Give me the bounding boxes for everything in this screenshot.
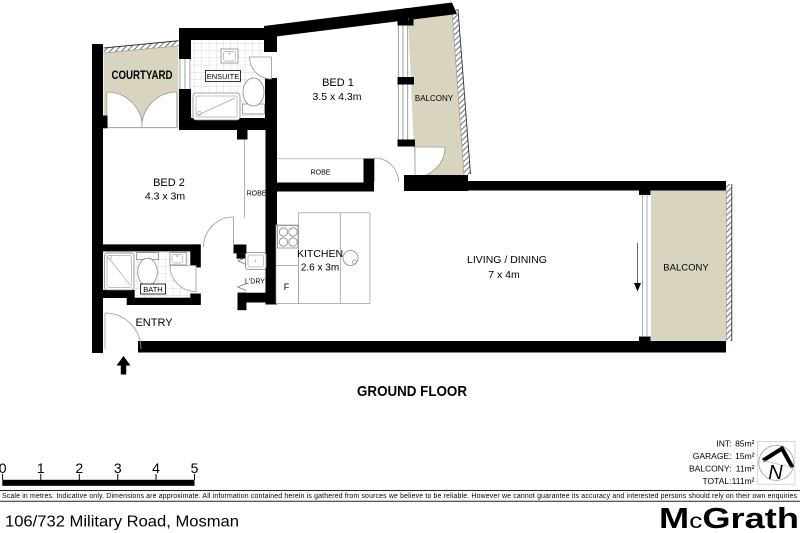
svg-text:5: 5 [191, 460, 199, 476]
svg-text:85m²: 85m² [735, 439, 755, 449]
svg-text:2: 2 [75, 460, 83, 476]
svg-text:ENTRY: ENTRY [135, 317, 173, 329]
svg-text:BALCONY: BALCONY [663, 263, 709, 274]
svg-text:ROBE: ROBE [247, 191, 267, 198]
svg-text:3.5 x 4.3m: 3.5 x 4.3m [312, 91, 361, 103]
svg-text:7 x 4m: 7 x 4m [488, 269, 520, 281]
svg-text:4: 4 [152, 460, 160, 476]
svg-text:COURTYARD: COURTYARD [112, 70, 173, 82]
svg-text:2.6 x 3m: 2.6 x 3m [301, 263, 339, 274]
svg-text:L'DRY: L'DRY [245, 279, 265, 286]
svg-text:BALCONY:: BALCONY: [689, 464, 732, 474]
svg-text:106/732 Military Road, Mosman: 106/732 Military Road, Mosman [5, 514, 239, 531]
svg-text:LIVING / DINING: LIVING / DINING [467, 254, 547, 266]
svg-text:BALCONY: BALCONY [415, 94, 454, 103]
svg-text:BED 1: BED 1 [322, 77, 354, 89]
svg-text:INT:: INT: [716, 439, 731, 449]
svg-text:111m²: 111m² [732, 476, 755, 486]
svg-text:ENSUITE: ENSUITE [207, 72, 240, 81]
svg-text:GROUND FLOOR: GROUND FLOOR [357, 383, 467, 400]
svg-text:ROBE: ROBE [311, 170, 331, 177]
svg-text:KITCHEN: KITCHEN [297, 248, 343, 260]
svg-text:F: F [284, 282, 290, 292]
svg-text:TOTAL:: TOTAL: [703, 476, 732, 486]
svg-text:15m²: 15m² [735, 451, 755, 461]
svg-text:11m²: 11m² [736, 464, 755, 474]
svg-text:Scale in metres. Indicative on: Scale in metres. Indicative only. Dimens… [2, 493, 798, 500]
svg-text:GARAGE:: GARAGE: [693, 451, 732, 461]
svg-text:0: 0 [0, 460, 7, 476]
svg-text:3: 3 [114, 460, 122, 476]
svg-text:McGrath: McGrath [659, 503, 799, 533]
svg-text:BATH: BATH [143, 285, 162, 294]
svg-text:N: N [768, 462, 783, 484]
svg-text:BED 2: BED 2 [153, 177, 185, 189]
svg-text:4.3 x 3m: 4.3 x 3m [145, 191, 186, 203]
svg-text:1: 1 [37, 460, 45, 476]
